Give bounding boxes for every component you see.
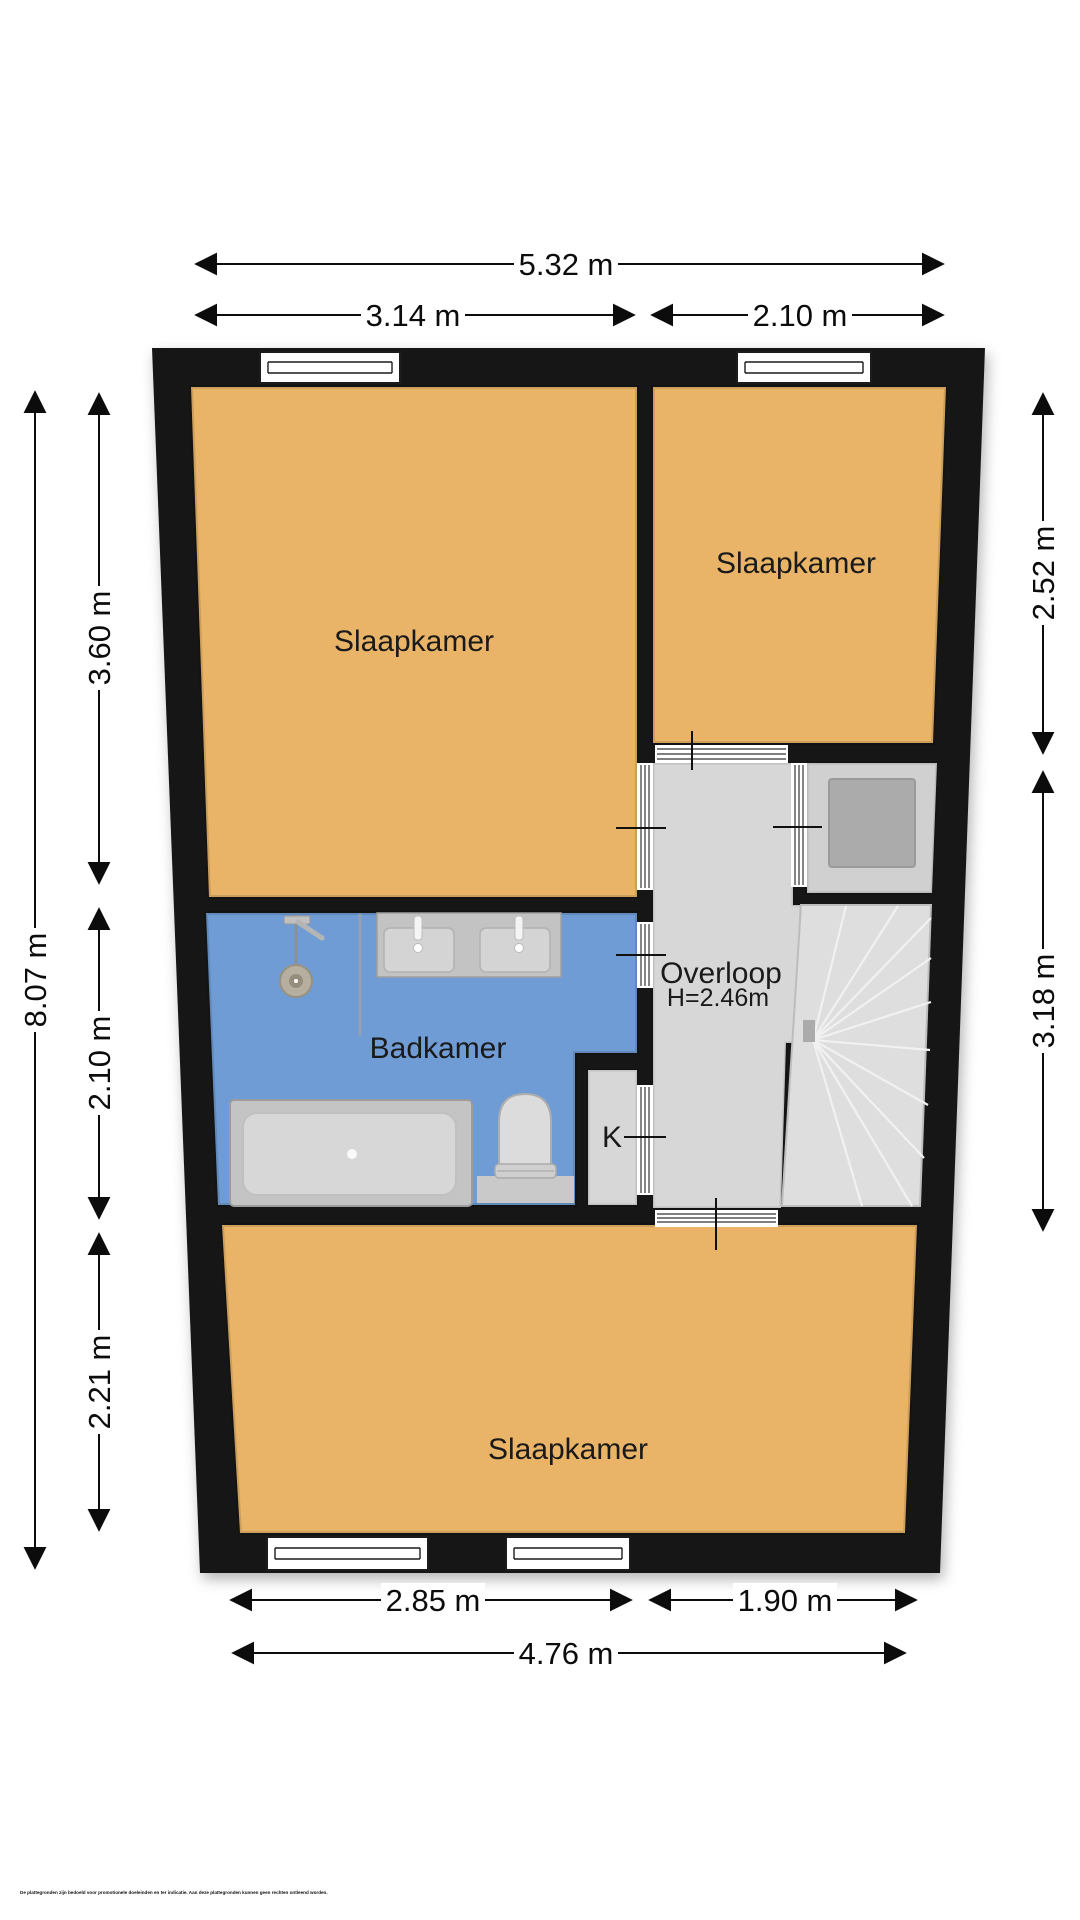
dim-left-width: 3.14 m <box>196 298 634 333</box>
svg-text:2.10 m: 2.10 m <box>753 298 848 333</box>
dim-bottom-left-width: 2.85 m <box>231 1583 631 1618</box>
room-slaapkamer-bottom <box>222 1225 917 1533</box>
dim-top-section-height: 3.60 m <box>82 394 117 883</box>
stair-newel <box>803 1020 815 1042</box>
svg-text:3.14 m: 3.14 m <box>366 298 461 333</box>
room-label-slaapkamer-top-left: Slaapkamer <box>334 625 494 658</box>
svg-text:2.52 m: 2.52 m <box>1026 526 1061 621</box>
dim-mid-section-height: 2.10 m <box>82 909 117 1218</box>
dim-total-width: 5.32 m <box>196 247 943 282</box>
svg-text:2.21 m: 2.21 m <box>82 1335 117 1430</box>
window <box>260 352 400 383</box>
svg-text:3.18 m: 3.18 m <box>1026 954 1061 1049</box>
dim-bottom-right-width: 1.90 m <box>650 1583 916 1618</box>
window <box>737 352 871 383</box>
dim-low-section-height: 2.21 m <box>82 1234 117 1530</box>
door-opening <box>637 1085 653 1195</box>
staircase-floor <box>782 905 931 1206</box>
dim-landing-height: 3.18 m <box>1026 772 1061 1230</box>
building <box>152 348 985 1573</box>
dim-right-width: 2.10 m <box>652 298 943 333</box>
double-sink <box>377 913 561 977</box>
room-label-badkamer: Badkamer <box>370 1032 507 1065</box>
dim-total-height: 8.07 m <box>18 392 53 1568</box>
bathtub <box>230 1100 472 1206</box>
svg-text:2.85 m: 2.85 m <box>386 1583 481 1618</box>
room-height-note: H=2.46m <box>667 984 769 1012</box>
svg-text:3.60 m: 3.60 m <box>82 591 117 686</box>
floor-plan-canvas: Slaapkamer Slaapkamer Badkamer Overloop … <box>0 0 1080 1920</box>
svg-text:8.07 m: 8.07 m <box>18 933 53 1028</box>
disclaimer-text: De plattegronden zijn bedoeld voor promo… <box>20 1890 328 1895</box>
room-label-kast: K <box>602 1121 622 1154</box>
svg-text:5.32 m: 5.32 m <box>519 247 614 282</box>
svg-text:4.76 m: 4.76 m <box>519 1636 614 1671</box>
dim-bedroom-height: 2.52 m <box>1026 394 1061 753</box>
door-opening <box>637 763 653 890</box>
svg-text:1.90 m: 1.90 m <box>738 1583 833 1618</box>
door-opening <box>655 745 788 763</box>
room-label-slaapkamer-top-right: Slaapkamer <box>716 547 876 580</box>
dim-bottom-total-width: 4.76 m <box>233 1636 905 1671</box>
room-label-slaapkamer-bottom: Slaapkamer <box>488 1433 648 1466</box>
window <box>506 1537 630 1570</box>
door-opening <box>791 763 807 887</box>
svg-text:2.10 m: 2.10 m <box>82 1016 117 1111</box>
appliance <box>829 779 915 867</box>
window <box>267 1537 428 1570</box>
